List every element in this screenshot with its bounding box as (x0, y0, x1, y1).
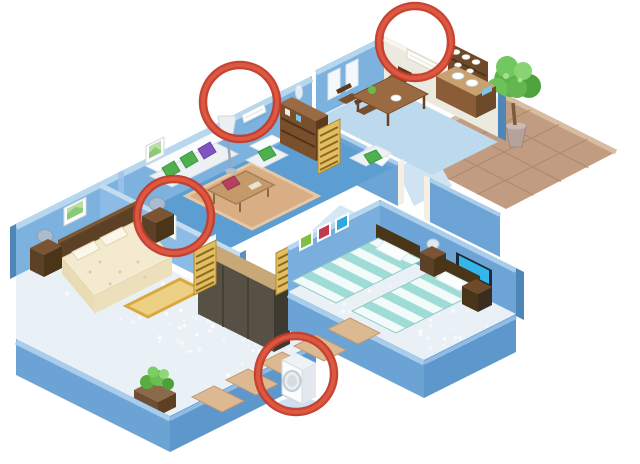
kitchen-wall-end-cap (498, 93, 506, 141)
tree-trunk (513, 103, 515, 125)
outdoor-ac-unit (278, 353, 318, 410)
kitchen-window (328, 68, 340, 100)
back-wall-end-cap (10, 224, 16, 279)
door-jamb (398, 159, 404, 206)
floorplan-illustration (0, 0, 640, 464)
table-dish (391, 95, 401, 101)
sink-bowl-2 (466, 80, 478, 87)
table-plant (368, 86, 376, 94)
floorplan-svg (0, 0, 640, 464)
door-jamb-2 (424, 175, 430, 222)
sink-bowl (452, 73, 464, 80)
wall-sconce (296, 85, 303, 99)
